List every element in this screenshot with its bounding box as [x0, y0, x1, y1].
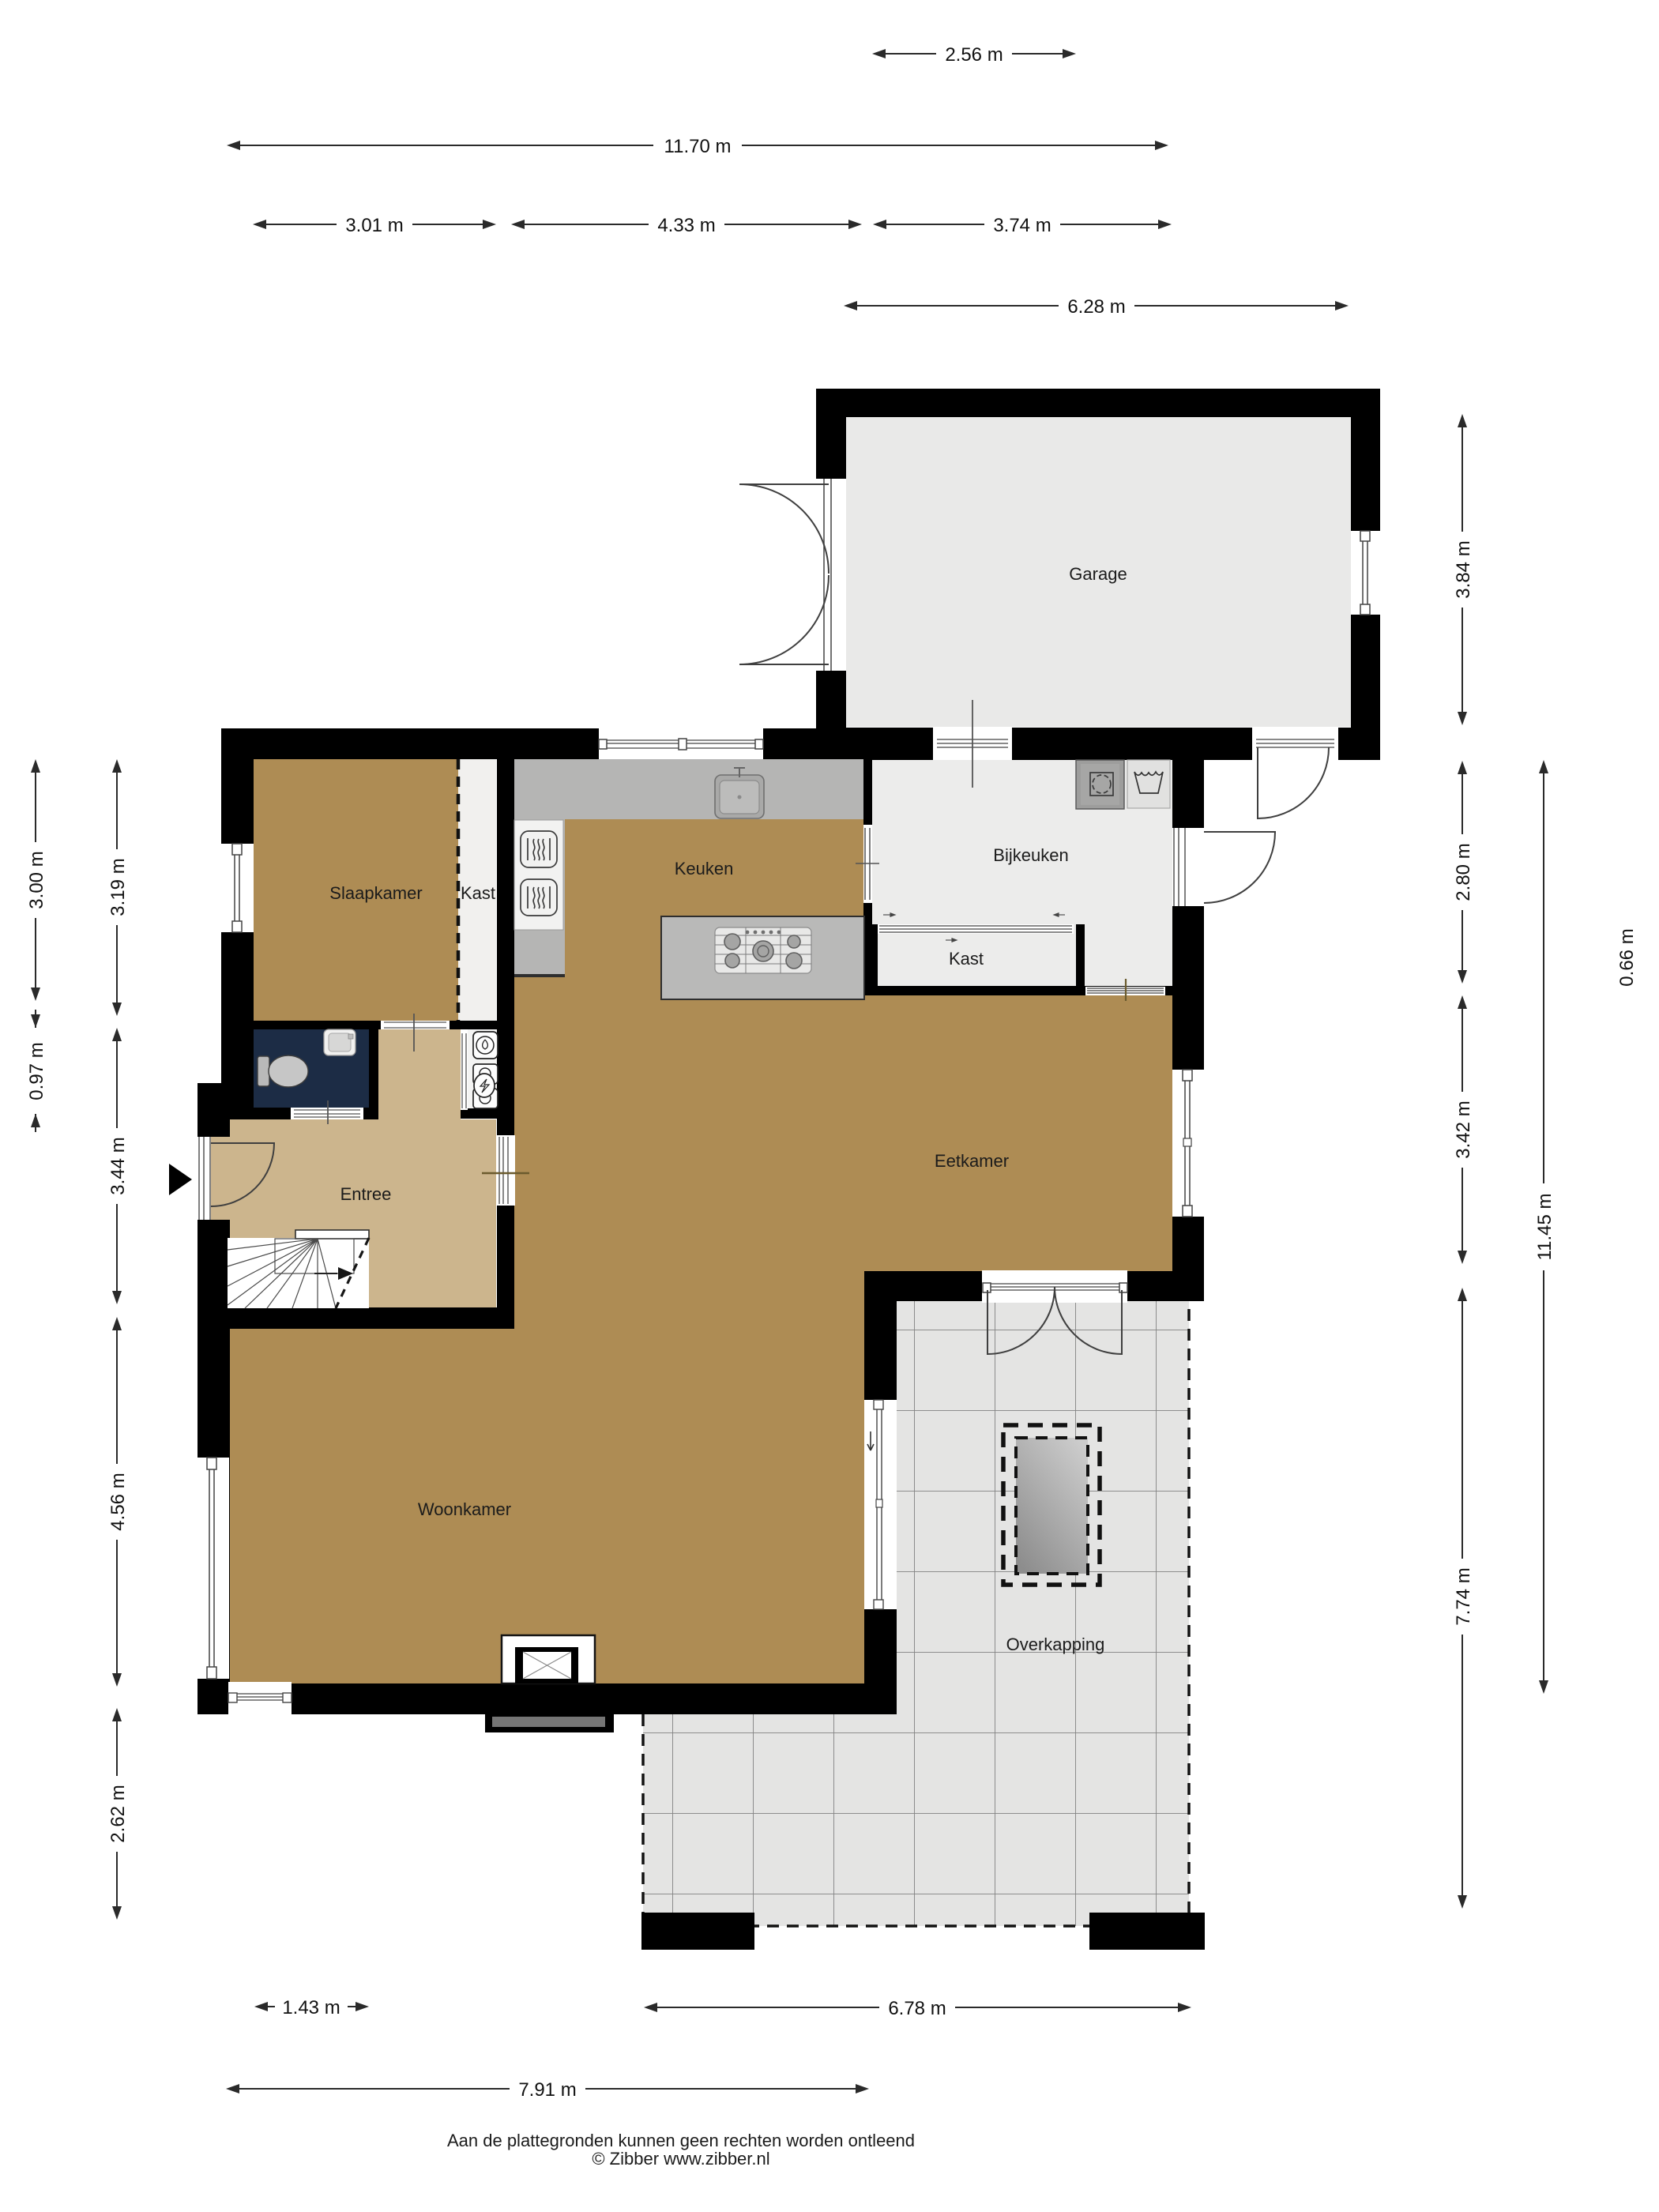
svg-text:3.19 m: 3.19 m	[107, 858, 129, 916]
svg-text:3.44 m: 3.44 m	[107, 1137, 129, 1194]
svg-text:7.74 m: 7.74 m	[1453, 1567, 1474, 1625]
svg-text:Kast: Kast	[461, 883, 495, 903]
svg-text:Entree: Entree	[340, 1184, 392, 1204]
svg-text:7.91 m: 7.91 m	[518, 2079, 576, 2101]
svg-text:4.33 m: 4.33 m	[657, 215, 715, 236]
svg-text:2.80 m: 2.80 m	[1453, 843, 1474, 901]
svg-text:11.45 m: 11.45 m	[1534, 1194, 1556, 1261]
svg-text:0.66 m: 0.66 m	[1616, 928, 1638, 986]
svg-text:3.01 m: 3.01 m	[345, 215, 403, 236]
svg-text:6.78 m: 6.78 m	[888, 1998, 946, 2019]
svg-text:Garage: Garage	[1069, 564, 1127, 584]
svg-text:3.00 m: 3.00 m	[26, 851, 47, 908]
svg-text:Kast: Kast	[949, 949, 984, 969]
svg-text:3.74 m: 3.74 m	[993, 215, 1051, 236]
svg-text:11.70 m: 11.70 m	[664, 136, 732, 157]
svg-text:Keuken: Keuken	[675, 859, 734, 878]
svg-text:4.56 m: 4.56 m	[107, 1473, 129, 1530]
svg-text:6.28 m: 6.28 m	[1067, 296, 1125, 318]
svg-text:3.84 m: 3.84 m	[1453, 540, 1474, 598]
svg-text:Aan de plattegronden kunnen ge: Aan de plattegronden kunnen geen rechten…	[447, 2131, 915, 2150]
svg-text:3.42 m: 3.42 m	[1453, 1100, 1474, 1158]
svg-text:1.43 m: 1.43 m	[282, 1997, 340, 2018]
svg-text:0.97 m: 0.97 m	[26, 1042, 47, 1100]
svg-text:Overkapping: Overkapping	[1006, 1635, 1105, 1654]
svg-text:© Zibber www.zibber.nl: © Zibber www.zibber.nl	[592, 2149, 769, 2169]
svg-text:Eetkamer: Eetkamer	[935, 1151, 1009, 1171]
svg-text:2.56 m: 2.56 m	[945, 44, 1003, 66]
svg-text:Bijkeuken: Bijkeuken	[993, 845, 1068, 865]
svg-text:Slaapkamer: Slaapkamer	[329, 883, 422, 903]
svg-text:Woonkamer: Woonkamer	[418, 1499, 511, 1519]
svg-text:2.62 m: 2.62 m	[107, 1785, 129, 1842]
